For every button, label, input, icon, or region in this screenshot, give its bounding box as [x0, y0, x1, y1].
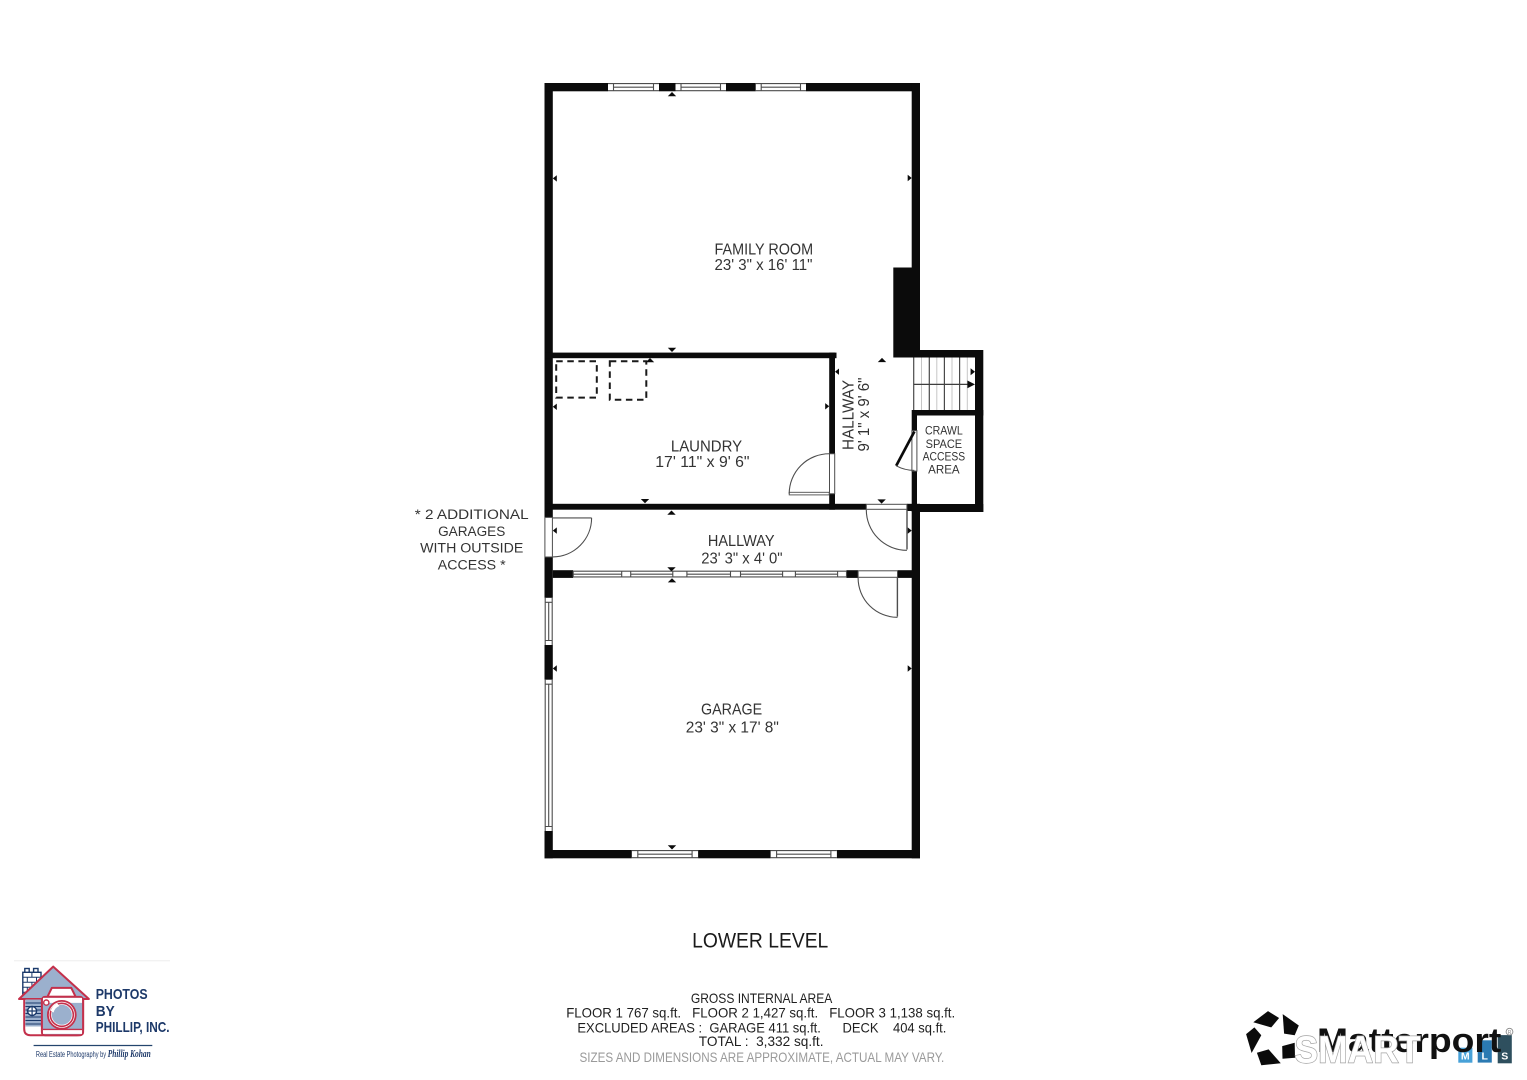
- svg-text:LAUNDRY: LAUNDRY: [671, 439, 742, 456]
- svg-text:HALLWAY: HALLWAY: [840, 380, 857, 450]
- svg-text:FAMILY ROOM: FAMILY ROOM: [715, 242, 814, 259]
- svg-text:PHOTOS: PHOTOS: [96, 986, 148, 1003]
- svg-text:23' 3" x 4' 0": 23' 3" x 4' 0": [701, 551, 782, 568]
- svg-text:23' 3" x 16' 11": 23' 3" x 16' 11": [715, 257, 813, 274]
- svg-text:WITH OUTSIDE: WITH OUTSIDE: [420, 541, 523, 556]
- svg-text:GARAGE: GARAGE: [701, 701, 762, 718]
- svg-text:GROSS INTERNAL AREA: GROSS INTERNAL AREA: [691, 990, 833, 1006]
- svg-text:FLOOR 1 767 sq.ft. FLOOR 2 1: FLOOR 1 767 sq.ft. FLOOR 2 1,427 sq.ft. …: [566, 1005, 955, 1021]
- svg-text:CRAWL: CRAWL: [925, 423, 963, 437]
- svg-text:23' 3" x 17' 8": 23' 3" x 17' 8": [686, 720, 779, 737]
- svg-text:HALLWAY: HALLWAY: [708, 533, 775, 550]
- svg-text:* 2 ADDITIONAL: * 2 ADDITIONAL: [415, 507, 529, 522]
- svg-text:R: R: [1508, 1030, 1512, 1036]
- svg-text:AREA: AREA: [928, 462, 960, 476]
- svg-text:LOWER LEVEL: LOWER LEVEL: [692, 929, 828, 953]
- svg-text:17' 11" x 9' 6": 17' 11" x 9' 6": [655, 454, 749, 471]
- svg-text:PHILLIP, INC.: PHILLIP, INC.: [96, 1019, 170, 1036]
- svg-text:L: L: [1481, 1051, 1488, 1063]
- svg-text:SMART: SMART: [1295, 1030, 1421, 1072]
- svg-text:BY: BY: [96, 1003, 115, 1020]
- svg-text:9' 1" x 9' 6": 9' 1" x 9' 6": [856, 378, 873, 452]
- svg-text:ACCESS *: ACCESS *: [438, 558, 507, 573]
- svg-text:S: S: [1501, 1051, 1508, 1063]
- svg-text:TOTAL : 3,332 sq.ft.: TOTAL : 3,332 sq.ft.: [699, 1033, 824, 1049]
- svg-text:Real Estate Photography by Phi: Real Estate Photography by Phillip Kohan: [36, 1049, 151, 1060]
- svg-text:M: M: [1461, 1051, 1470, 1063]
- svg-text:GARAGES: GARAGES: [438, 524, 505, 539]
- svg-text:SIZES AND DIMENSIONS ARE APPRO: SIZES AND DIMENSIONS ARE APPROXIMATE, AC…: [580, 1049, 945, 1065]
